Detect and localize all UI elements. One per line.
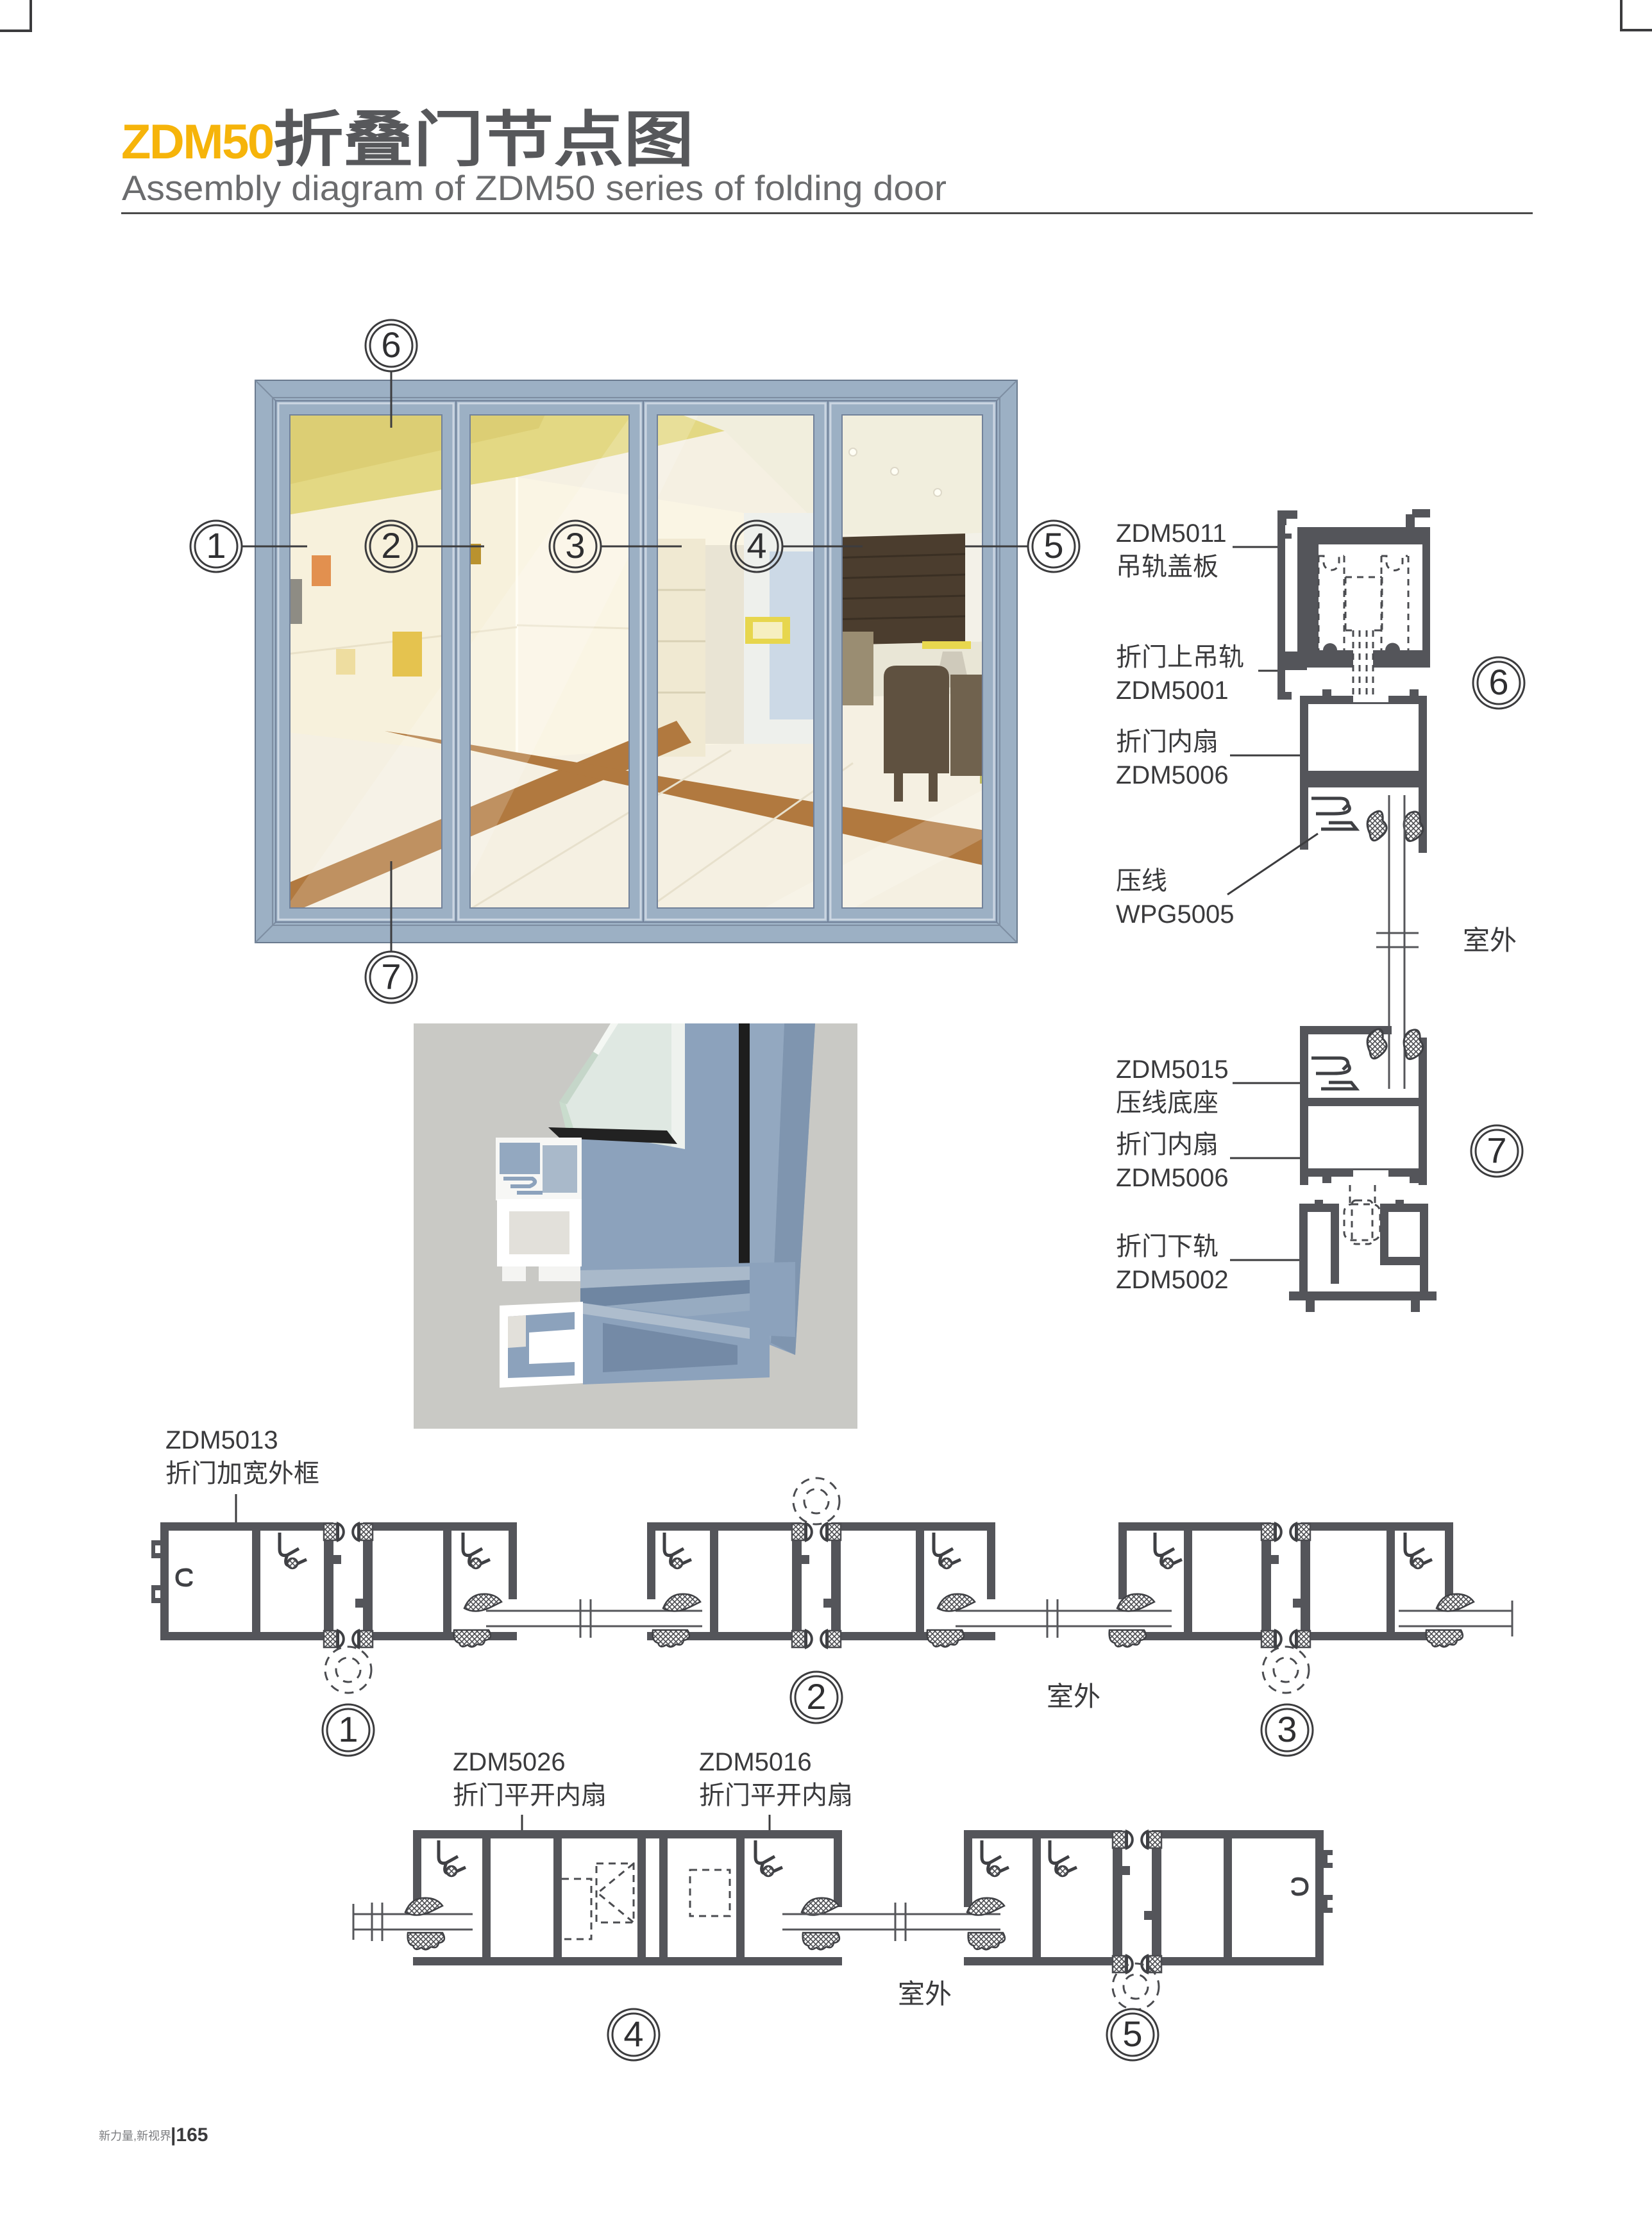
svg-text:折门下轨: 折门下轨 [1116,1232,1218,1261]
svg-text:2: 2 [806,1676,826,1717]
svg-text:折门上吊轨: 折门上吊轨 [1116,643,1244,671]
svg-text:折门平开内扇: 折门平开内扇 [453,1781,607,1810]
svg-text:ZDM5006: ZDM5006 [1116,1164,1229,1192]
svg-text:5: 5 [1043,525,1063,566]
svg-text:7: 7 [1487,1130,1506,1170]
svg-text:|165: |165 [171,2124,208,2146]
svg-text:ZDM5006: ZDM5006 [1116,761,1229,789]
svg-text:折叠门节点图: 折叠门节点图 [273,106,694,173]
svg-text:1: 1 [338,1709,358,1749]
svg-text:7: 7 [381,956,401,996]
svg-text:1: 1 [206,525,226,566]
svg-text:2: 2 [381,525,401,566]
svg-text:WPG5005: WPG5005 [1116,900,1235,929]
svg-text:室外: 室外 [1047,1681,1100,1711]
svg-text:室外: 室外 [898,1979,952,2009]
svg-text:压线: 压线 [1116,867,1167,895]
svg-text:3: 3 [565,525,585,566]
svg-text:ZDM5002: ZDM5002 [1116,1266,1229,1294]
svg-text:ZDM5013: ZDM5013 [165,1426,278,1454]
svg-text:ZDM5015: ZDM5015 [1116,1055,1229,1084]
svg-text:ZDM50: ZDM50 [121,115,273,169]
svg-text:6: 6 [1488,662,1508,702]
svg-text:新力量,新视界: 新力量,新视界 [99,2130,171,2142]
svg-text:ZDM5026: ZDM5026 [453,1748,566,1776]
svg-text:5: 5 [1122,2014,1142,2054]
svg-text:3: 3 [1277,1709,1297,1749]
svg-text:压线底座: 压线底座 [1116,1089,1218,1117]
svg-text:折门内扇: 折门内扇 [1116,728,1218,756]
svg-text:4: 4 [746,525,766,566]
svg-text:ZDM5001: ZDM5001 [1116,677,1229,705]
svg-text:Assembly diagram of ZDM50 seri: Assembly diagram of ZDM50 series of fold… [122,168,947,208]
svg-text:室外: 室外 [1463,925,1517,955]
svg-text:吊轨盖板: 吊轨盖板 [1116,553,1218,581]
svg-text:ZDM5011: ZDM5011 [1116,519,1227,548]
svg-text:折门平开内扇: 折门平开内扇 [699,1781,853,1810]
svg-text:4: 4 [623,2014,643,2054]
svg-text:6: 6 [381,324,401,365]
svg-text:折门加宽外框: 折门加宽外框 [165,1459,319,1488]
svg-text:ZDM5016: ZDM5016 [699,1748,812,1776]
svg-text:折门内扇: 折门内扇 [1116,1131,1218,1159]
